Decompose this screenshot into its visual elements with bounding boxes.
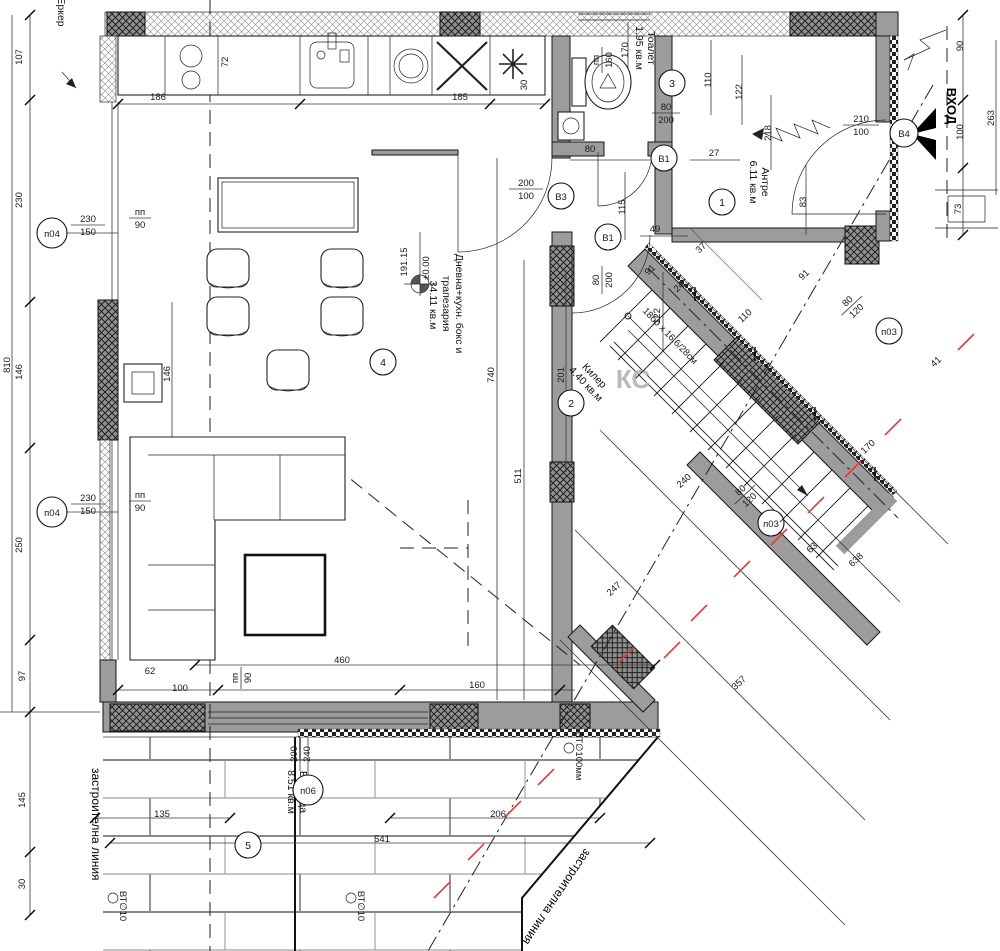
dimension-label: 185 (452, 92, 468, 103)
room-number: 5 (245, 840, 251, 852)
room-label: Дневна+кухн. бокс и трапезария 34.11 кв.… (427, 254, 465, 356)
dimension-label: 30 (519, 80, 530, 91)
dimension-label: 541 (374, 834, 390, 845)
svg-text:80: 80 (661, 102, 672, 113)
red-boundary-dash (885, 419, 901, 435)
dimension-label: 115 (617, 199, 628, 214)
svg-text:100: 100 (518, 191, 534, 202)
toilet-sink-icon (558, 112, 584, 140)
dimension-label: 27 (709, 148, 720, 159)
red-boundary-dash (958, 334, 974, 350)
kitchen (118, 33, 545, 95)
bay-window-label: Еркер (55, 0, 67, 27)
dimension-label: 206 (490, 809, 506, 820)
dining-table (218, 178, 358, 232)
dimension-label: 460 (334, 655, 350, 666)
dimension-label: 740 (486, 367, 497, 383)
dimension-label: 160 (469, 680, 485, 691)
fireplace (124, 364, 162, 402)
room-number: 4 (380, 357, 386, 369)
dimension-label: 37 (694, 241, 709, 256)
dimension-label: 146 (162, 366, 173, 382)
room-number: 1 (719, 197, 725, 209)
dimension-label: 83 (798, 197, 809, 208)
dimension-label: 122 (652, 308, 663, 324)
svg-text:200: 200 (604, 272, 615, 288)
svg-text:ВТ∅10: ВТ∅10 (355, 891, 366, 921)
dimension-label: 146 (14, 364, 25, 380)
marker-code: п03 (763, 519, 779, 530)
room-4-living: 4 Дневна+кухн. бокс и трапезария 34.11 к… (370, 254, 465, 375)
svg-text:90: 90 (135, 503, 146, 514)
dimension-label: 30 (17, 879, 28, 890)
svg-text:ВТ∅100мм: ВТ∅100мм (573, 732, 584, 781)
red-boundary-dash (734, 561, 750, 577)
svg-text:ВТ∅10: ВТ∅10 (117, 891, 128, 921)
level-relative: ±0.00 (421, 256, 432, 280)
wc-cistern (572, 58, 586, 106)
marker-code: В3 (555, 192, 567, 203)
living-area (124, 364, 345, 660)
dining-chairs (207, 249, 363, 391)
marker-B1-pantry: В1 80 200 (591, 224, 621, 294)
svg-text:200: 200 (289, 746, 300, 762)
dimension-label: 97 (17, 671, 28, 682)
marker-pp90-bottom: пп 90 (230, 667, 254, 689)
room-1-antre: 1 Антре6.11 кв.м (709, 161, 771, 215)
door-B3-swing (458, 158, 552, 252)
svg-text:пп: пп (135, 490, 145, 501)
dimension-label: 201 (556, 367, 567, 383)
marker-pp90-upper: пп 90 (129, 207, 151, 231)
svg-text:210: 210 (853, 114, 869, 125)
kitchen-counter (118, 36, 545, 95)
svg-text:200: 200 (658, 115, 674, 126)
dimension-label: 218 (763, 125, 774, 141)
dimension-label: 810 (2, 357, 13, 373)
dimension-label: 357 (730, 674, 749, 693)
direction-arrow-icon (904, 30, 946, 60)
dimension-label: 135 (154, 809, 170, 820)
red-boundary-dash (691, 605, 707, 621)
floor-plan-page: 191.15 ±0.00 1 Антре6.11 кв.м 2 Килер4.4… (0, 0, 1000, 951)
dimension-label: 170 (859, 438, 878, 457)
top-wall (105, 12, 888, 36)
dimension-label: 170 (620, 42, 631, 58)
svg-text:150: 150 (80, 227, 96, 238)
marker-code: В4 (898, 129, 910, 140)
marker-code: В1 (658, 154, 670, 165)
porch-steps (935, 190, 998, 228)
dimension-label: 100 (172, 683, 188, 694)
dining-set (207, 178, 363, 391)
marker-code: п06 (300, 786, 316, 797)
marker-p03-upper: п03 80 120 (834, 288, 902, 344)
dimension-label: 230 (14, 192, 25, 208)
dimension-label: 110 (703, 72, 714, 87)
dimension-label: 80 (585, 144, 596, 155)
dimension-label: 263 (986, 110, 997, 126)
dimension-label: 41 (929, 355, 944, 370)
svg-text:80: 80 (591, 275, 602, 286)
coffee-table (245, 555, 325, 635)
red-boundary-dash (808, 497, 824, 513)
dimension-label: 49 (650, 224, 661, 235)
dimension-label: 73 (953, 204, 964, 215)
building-line-label-left: застроителна линия (89, 768, 103, 881)
svg-text:пп: пп (230, 673, 241, 683)
marker-p04-upper: п04 230 150 (37, 214, 118, 248)
svg-text:пп: пп (591, 55, 602, 65)
svg-text:240: 240 (302, 746, 313, 762)
kitchen-partition-stub (372, 150, 458, 155)
svg-text:пп: пп (135, 207, 145, 218)
dimension-label: 240 (675, 472, 694, 491)
svg-text:90: 90 (243, 673, 254, 684)
dimension-label: 145 (17, 792, 28, 808)
dimension-label: 100 (955, 124, 966, 140)
marker-code: п03 (881, 327, 897, 338)
room-label: Тоалет1.95 кв.м (633, 26, 657, 70)
left-wall (100, 36, 116, 102)
dimension-label: 186 (150, 92, 166, 103)
marker-code: п04 (44, 508, 60, 519)
svg-text:90: 90 (135, 220, 146, 231)
red-boundary-dash (664, 642, 680, 658)
svg-text:160: 160 (604, 52, 615, 68)
level-absolute: 191.15 (399, 247, 410, 276)
svg-text:100: 100 (853, 127, 869, 138)
dimension-label: 247 (605, 580, 624, 599)
svg-text:230: 230 (80, 214, 96, 225)
site-boundary-line (428, 85, 933, 951)
dimension-label: 62 (145, 666, 156, 677)
dimension-label: 250 (14, 537, 25, 553)
dimension-label: 110 (736, 307, 755, 325)
entrance-label: ВХОД (944, 88, 959, 125)
room-number: 2 (568, 398, 574, 410)
svg-text:150: 150 (80, 506, 96, 517)
svg-text:200: 200 (518, 178, 534, 189)
dimension-label: 638 (847, 551, 866, 570)
dimension-label: 90 (955, 41, 966, 52)
room-number: 3 (669, 78, 675, 90)
marker-code: В1 (602, 233, 614, 244)
marker-code: п04 (44, 229, 60, 240)
svg-text:230: 230 (80, 493, 96, 504)
dimension-label: 72 (220, 57, 231, 68)
dimension-label: 107 (14, 49, 25, 65)
dimension-label: 91 (797, 268, 812, 283)
dimension-label: 122 (734, 84, 745, 100)
dimension-label: 511 (513, 468, 524, 483)
room-label: Антре6.11 кв.м (747, 161, 771, 204)
marker-B3: В3 200 100 (509, 178, 574, 209)
floor-plan-drawing: 191.15 ±0.00 1 Антре6.11 кв.м 2 Килер4.4… (0, 0, 1000, 951)
